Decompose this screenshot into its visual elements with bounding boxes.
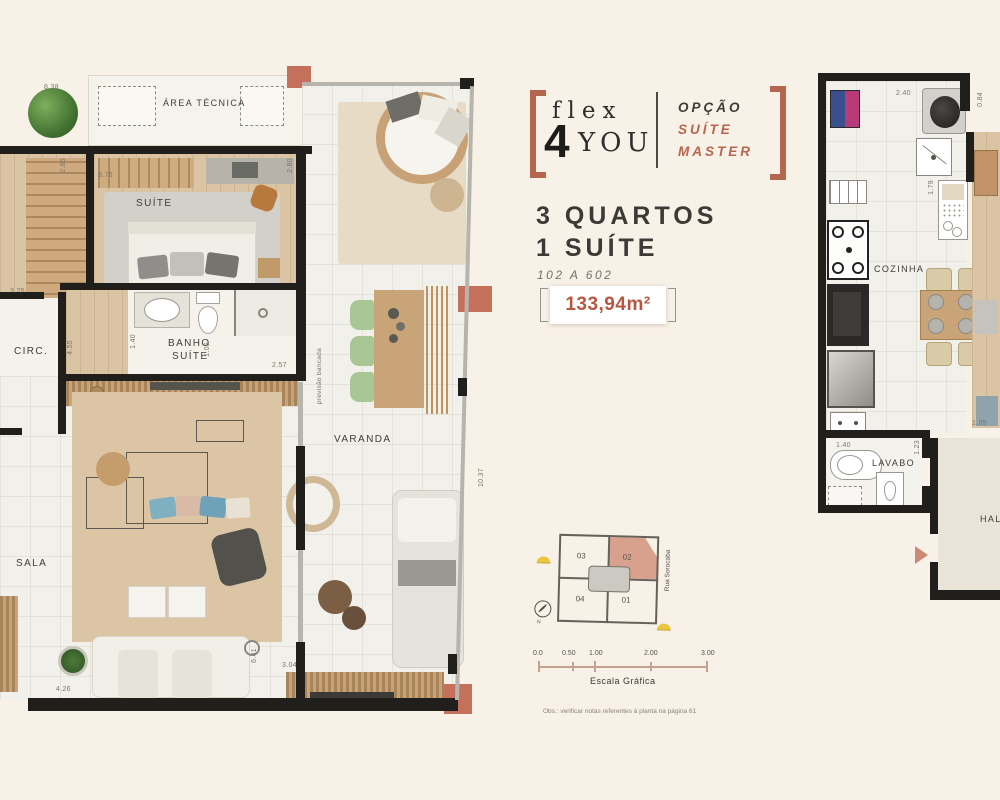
sun-icon [537, 556, 551, 563]
dim-label: 6.41 [251, 648, 258, 663]
scale-tick-label: 3.00 [701, 650, 715, 657]
room-label-hall: HALL [980, 514, 1000, 524]
unit-headline: 3 QUARTOS 1 SUÍTE 102 A 602 [536, 202, 776, 292]
dim-label: 4.26 [56, 686, 71, 693]
scale-tick [572, 662, 574, 671]
dining-chair [350, 300, 374, 330]
footnote: Obs.: verificar notas referentes à plant… [543, 708, 696, 715]
washer-provision-box [828, 486, 862, 506]
section-marker [458, 286, 492, 312]
sofa-pillow [176, 496, 200, 516]
dim-label: 1.79 [928, 180, 935, 195]
dim-label: 2.80 [287, 158, 294, 173]
wall [818, 73, 826, 513]
wall [60, 283, 306, 290]
wall [930, 562, 938, 600]
room-label-area-tecnica: ÁREA TÉCNICA [163, 98, 246, 108]
pouf [430, 178, 464, 212]
dim-label: 10.37 [478, 468, 485, 487]
badge-bracket-left-icon [540, 288, 548, 322]
console [974, 150, 998, 196]
kitchen-sink [916, 138, 952, 176]
room-label-lavabo: LAVABO [872, 458, 915, 468]
floorplan-sheet: ÁREA TÉCNICA 8.38 2.85 SUÍTE 3.76 2.80 [0, 0, 1000, 800]
dim-label: 1.05 [204, 342, 211, 357]
round-table [342, 606, 366, 630]
ac-unit-box [240, 86, 284, 126]
shower-head [258, 308, 268, 318]
brand-four: 4 [544, 114, 570, 168]
wall [296, 446, 305, 550]
room-label-cozinha: COZINHA [874, 264, 924, 274]
sun-icon [657, 623, 671, 630]
place-setting [928, 318, 944, 334]
keyplan-unit-02: 02 [623, 552, 632, 561]
unit-range: 102 A 602 [537, 268, 613, 282]
wall [960, 81, 970, 111]
dim-label: 0.84 [977, 92, 984, 107]
corridor-floor [66, 288, 128, 380]
dim-label: 2.57 [272, 362, 287, 369]
table-decor [389, 334, 398, 343]
cooktop [827, 220, 869, 280]
wall [0, 428, 22, 435]
compass-north: N [537, 619, 541, 625]
round-side-table [96, 452, 130, 486]
dining-chair [926, 342, 952, 366]
scale-tick [706, 661, 708, 672]
varanda-railing [302, 82, 468, 86]
wall [58, 292, 66, 434]
scale-caption: Escala Gráfica [590, 676, 656, 686]
left-shelf [0, 596, 18, 692]
wall [938, 590, 1000, 600]
entrance-arrow-icon [915, 546, 928, 564]
nightstand [258, 258, 280, 278]
keyplan-unit-03: 03 [577, 551, 586, 560]
dim-label: 2.40 [896, 90, 911, 97]
dining-chair [926, 268, 952, 292]
sofa-seat [172, 650, 212, 698]
drawer-unit [829, 180, 867, 204]
wall [0, 146, 312, 154]
pantry-shelf [938, 180, 968, 240]
keyplan: 03 02 04 01 Rua Sorocaba N [529, 528, 682, 642]
area-badge: 133,94m² [540, 286, 680, 324]
area-value-box: 133,94m² [550, 286, 666, 324]
compass-icon [534, 600, 551, 617]
dining-chair [350, 372, 374, 402]
toilet [876, 472, 904, 506]
keyplan-unit-04: 04 [576, 594, 585, 603]
dim-label: 3.04 [282, 662, 297, 669]
counter-dark [827, 284, 869, 346]
scale-tick [650, 662, 652, 671]
dim-label: 4.55 [67, 340, 74, 355]
drawer-unit [830, 412, 866, 432]
dim-label: 2.85 [60, 158, 67, 173]
wall [28, 698, 458, 711]
sofa-seat [118, 650, 158, 698]
wall [458, 378, 467, 396]
room-label-sala: SALA [16, 558, 47, 569]
wall [818, 73, 970, 81]
sofa-pillow [149, 496, 178, 519]
keyplan-core [588, 566, 631, 593]
unit-rooms-line2: 1 SUÍTE [536, 234, 658, 263]
toilet [196, 292, 220, 304]
dim-label: 1.40 [130, 334, 137, 349]
scale-tick [538, 661, 540, 672]
wall [296, 146, 306, 378]
wall [0, 292, 44, 299]
ottoman [128, 586, 166, 618]
area-value: 133,94m² [565, 294, 650, 316]
option-suite: SUÍTE [678, 122, 733, 137]
table-decor [388, 308, 399, 319]
room-label-circ: CIRC. [14, 346, 48, 357]
wall [86, 154, 94, 290]
table-decor [396, 322, 405, 331]
sideboard-tv [150, 382, 240, 390]
ottoman [168, 586, 206, 618]
option-opcao: OPÇÃO [678, 100, 743, 115]
room-label-varanda: VARANDA [334, 434, 391, 445]
street-label: Rua Sorocaba [664, 550, 672, 592]
option-master: MASTER [678, 144, 753, 159]
rattan-chair [286, 476, 340, 532]
wall [818, 505, 930, 513]
scale-tick-label: 1.00 [589, 650, 603, 657]
bed-pillow [205, 252, 240, 278]
scale-tick [594, 661, 596, 672]
sofa-pillow [225, 497, 250, 519]
scale-tick-label: 0.50 [562, 650, 576, 657]
fridge-icon [830, 90, 860, 128]
ac-unit-box [98, 86, 156, 126]
scale-tick-label: 2.00 [644, 650, 658, 657]
chaise-throw [398, 560, 456, 586]
sofa-pillow [199, 496, 227, 519]
dim-label: 1.40 [836, 442, 851, 449]
bath-sink [144, 298, 180, 322]
chaise-cushion [398, 498, 456, 542]
scale-tick-label: 0.0 [533, 650, 543, 657]
counter-stools [426, 286, 450, 414]
dim-label: 8.38 [44, 84, 59, 91]
keyplan-unit-01: 01 [621, 595, 630, 604]
wall [296, 642, 305, 700]
dining-table [374, 290, 424, 408]
bed-blanket [128, 222, 256, 234]
sofa [92, 636, 250, 698]
wall [922, 430, 930, 458]
divider [656, 92, 658, 168]
scale-line [538, 666, 708, 668]
room-label-suite: SUÍTE [136, 198, 172, 209]
wall [966, 132, 974, 182]
brand-logo: flex 4 YOU OPÇÃO SUÍTE MASTER [528, 86, 788, 182]
refrigerator [827, 350, 875, 408]
plant-icon [28, 88, 78, 138]
wall [818, 430, 930, 438]
sofa-outline [196, 420, 244, 442]
room-label-banho: SUÍTE [172, 351, 208, 362]
annotation-bancada: previsão bancada [316, 348, 323, 404]
plant-pot [58, 646, 88, 676]
place-setting [928, 294, 944, 310]
wall [930, 438, 938, 534]
wall [448, 654, 457, 674]
brand-you: YOU [578, 128, 653, 158]
console [974, 300, 998, 334]
bed-pillow [170, 252, 204, 276]
wall [60, 374, 306, 381]
bed-pillow [137, 254, 169, 279]
dim-label: 3.76 [98, 172, 113, 179]
bracket-right-icon [770, 86, 786, 180]
unit-rooms-line1: 3 QUARTOS [536, 202, 717, 231]
dim-label: 1.23 [914, 440, 921, 455]
desk-laptop [232, 162, 258, 178]
scale-bar: 0.0 0.50 1.00 2.00 3.00 Escala Gráfica [533, 650, 723, 692]
dining-chair [350, 336, 374, 366]
badge-bracket-right-icon [668, 288, 676, 322]
dim-label: 1.05 [972, 420, 987, 427]
